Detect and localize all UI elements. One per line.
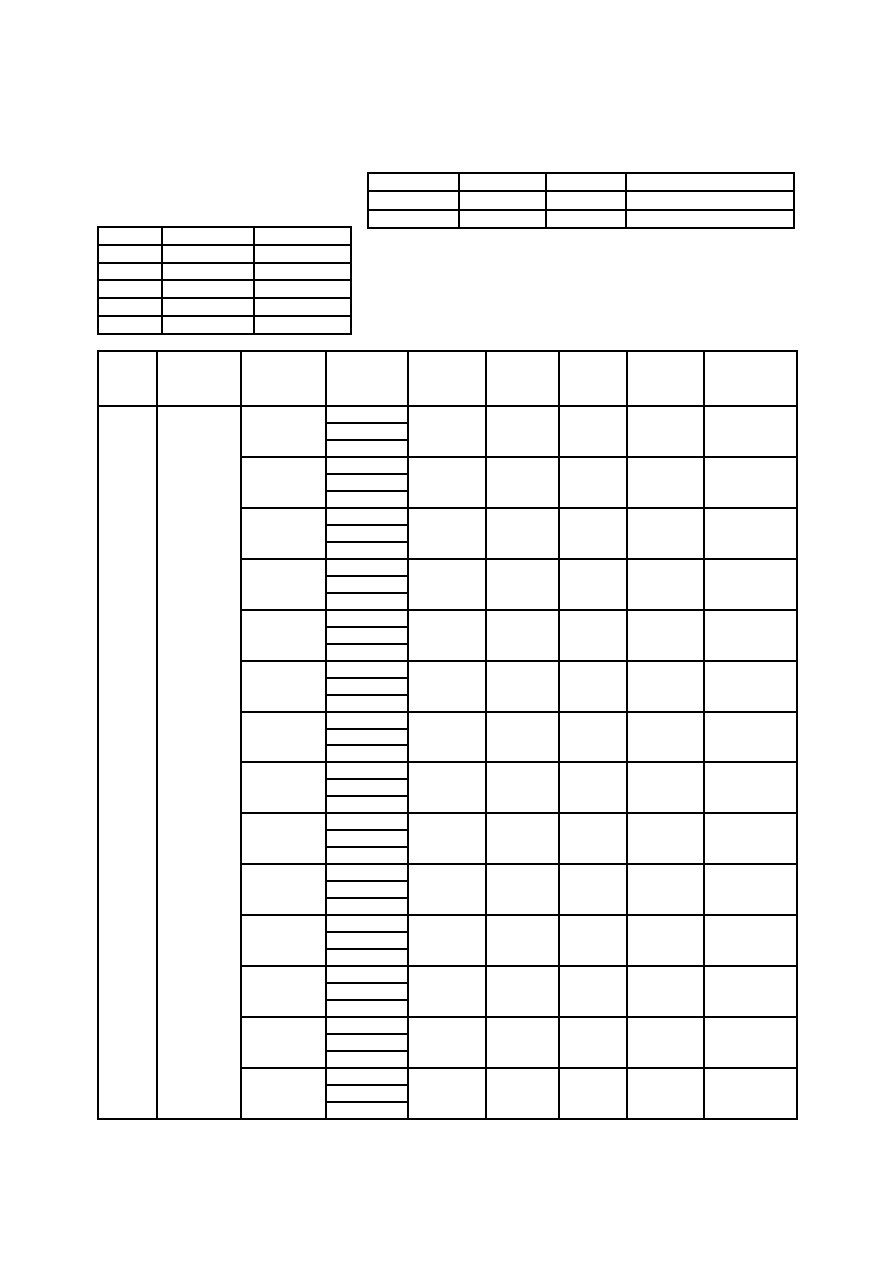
left-table <box>97 226 352 335</box>
table-cell <box>627 211 793 227</box>
body-cell <box>487 662 560 711</box>
main-table-row-groups <box>242 407 796 1118</box>
table-cell <box>99 246 163 262</box>
body-row-group <box>242 509 796 560</box>
header-cell <box>487 352 560 405</box>
main-table-merged-column-2 <box>158 407 242 1118</box>
body-cell <box>242 509 327 558</box>
body-row-group <box>242 967 796 1018</box>
body-row-group <box>242 865 796 916</box>
body-cell <box>242 611 327 660</box>
column4-subcell <box>327 628 407 645</box>
body-cell <box>242 560 327 609</box>
column4-subcell <box>327 662 407 679</box>
table-row <box>99 299 350 317</box>
column4-subcell <box>327 458 407 475</box>
body-cell <box>705 763 796 812</box>
body-cell <box>560 458 628 507</box>
column4-subdivided-cell <box>327 509 409 558</box>
column4-subcell <box>327 865 407 882</box>
body-cell <box>705 560 796 609</box>
column4-subdivided-cell <box>327 611 409 660</box>
body-cell <box>487 407 560 456</box>
column4-subcell <box>327 1086 407 1103</box>
table-row <box>99 281 350 299</box>
header-cell <box>560 352 628 405</box>
column4-subdivided-cell <box>327 560 409 609</box>
body-cell <box>560 814 628 863</box>
body-cell <box>628 814 705 863</box>
column4-subdivided-cell <box>327 814 409 863</box>
column4-subdivided-cell <box>327 916 409 965</box>
header-cell <box>158 352 242 405</box>
table-cell <box>163 317 255 333</box>
body-row-group <box>242 560 796 611</box>
header-cell <box>705 352 796 405</box>
body-cell <box>242 458 327 507</box>
column4-subcell <box>327 1069 407 1086</box>
column4-subcell <box>327 424 407 441</box>
header-cell <box>242 352 327 405</box>
body-cell <box>705 713 796 762</box>
table-cell <box>369 211 460 227</box>
column4-subcell <box>327 1052 407 1067</box>
table-cell <box>255 228 350 244</box>
body-cell <box>560 763 628 812</box>
body-row-group <box>242 611 796 662</box>
table-row <box>99 246 350 264</box>
body-cell <box>487 967 560 1016</box>
column4-subcell <box>327 814 407 831</box>
column4-subcell <box>327 509 407 526</box>
body-cell <box>560 865 628 914</box>
body-cell <box>242 763 327 812</box>
column4-subcell <box>327 611 407 628</box>
table-cell <box>99 264 163 280</box>
column4-subcell <box>327 577 407 594</box>
column4-subcell <box>327 780 407 797</box>
body-cell <box>560 509 628 558</box>
column4-subcell <box>327 441 407 456</box>
body-cell <box>560 1069 628 1118</box>
body-cell <box>560 967 628 1016</box>
body-cell <box>242 967 327 1016</box>
body-cell <box>628 916 705 965</box>
body-cell <box>409 763 487 812</box>
table-cell <box>547 192 627 208</box>
table-cell <box>255 299 350 315</box>
table-cell <box>163 264 255 280</box>
column4-subcell <box>327 797 407 812</box>
body-cell <box>705 916 796 965</box>
table-row <box>369 174 793 192</box>
body-cell <box>705 1069 796 1118</box>
column4-subcell <box>327 407 407 424</box>
main-table <box>97 350 798 1120</box>
body-row-group <box>242 814 796 865</box>
body-cell <box>705 407 796 456</box>
main-table-merged-column-1 <box>99 407 158 1118</box>
body-cell <box>560 560 628 609</box>
body-row-group <box>242 1069 796 1118</box>
table-row <box>369 192 793 210</box>
body-cell <box>628 1069 705 1118</box>
main-table-body <box>99 407 796 1118</box>
top-right-table <box>367 172 795 229</box>
column4-subcell <box>327 882 407 899</box>
body-cell <box>487 916 560 965</box>
header-cell <box>409 352 487 405</box>
table-row <box>99 264 350 282</box>
body-cell <box>409 713 487 762</box>
body-row-group <box>242 662 796 713</box>
document-page <box>0 0 893 1263</box>
column4-subcell <box>327 831 407 848</box>
column4-subcell <box>327 645 407 660</box>
body-row-group <box>242 407 796 458</box>
body-cell <box>409 916 487 965</box>
body-cell <box>705 611 796 660</box>
body-cell <box>628 509 705 558</box>
table-row <box>99 317 350 333</box>
body-cell <box>628 662 705 711</box>
body-cell <box>487 814 560 863</box>
column4-subcell <box>327 492 407 507</box>
body-cell <box>242 662 327 711</box>
body-cell <box>560 713 628 762</box>
table-cell <box>460 174 547 190</box>
table-cell <box>460 211 547 227</box>
body-cell <box>705 1018 796 1067</box>
body-cell <box>242 1069 327 1118</box>
body-cell <box>409 611 487 660</box>
body-cell <box>628 560 705 609</box>
column4-subcell <box>327 1103 407 1118</box>
body-cell <box>628 611 705 660</box>
column4-subdivided-cell <box>327 458 409 507</box>
body-cell <box>487 713 560 762</box>
body-cell <box>409 1018 487 1067</box>
body-cell <box>705 967 796 1016</box>
body-cell <box>560 1018 628 1067</box>
table-cell <box>163 281 255 297</box>
table-cell <box>255 317 350 333</box>
body-cell <box>628 1018 705 1067</box>
column4-subdivided-cell <box>327 407 409 456</box>
table-cell <box>460 192 547 208</box>
body-cell <box>705 458 796 507</box>
body-cell <box>409 662 487 711</box>
column4-subcell <box>327 933 407 950</box>
table-row <box>369 211 793 227</box>
column4-subcell <box>327 984 407 1001</box>
table-cell <box>255 281 350 297</box>
body-cell <box>560 611 628 660</box>
column4-subcell <box>327 967 407 984</box>
column4-subcell <box>327 560 407 577</box>
body-cell <box>560 407 628 456</box>
body-cell <box>628 763 705 812</box>
body-cell <box>487 865 560 914</box>
column4-subcell <box>327 763 407 780</box>
body-cell <box>242 1018 327 1067</box>
column4-subcell <box>327 713 407 730</box>
column4-subdivided-cell <box>327 1018 409 1067</box>
column4-subcell <box>327 696 407 711</box>
column4-subcell <box>327 526 407 543</box>
body-row-group <box>242 916 796 967</box>
body-cell <box>628 713 705 762</box>
table-cell <box>99 281 163 297</box>
table-row <box>99 228 350 246</box>
body-cell <box>487 1018 560 1067</box>
table-cell <box>369 174 460 190</box>
table-cell <box>99 299 163 315</box>
body-cell <box>628 865 705 914</box>
table-cell <box>547 211 627 227</box>
column4-subcell <box>327 746 407 761</box>
table-cell <box>163 246 255 262</box>
body-cell <box>242 713 327 762</box>
body-cell <box>409 560 487 609</box>
body-cell <box>409 1069 487 1118</box>
column4-subdivided-cell <box>327 713 409 762</box>
body-cell <box>705 814 796 863</box>
table-cell <box>99 317 163 333</box>
body-cell <box>628 407 705 456</box>
header-cell <box>628 352 705 405</box>
body-cell <box>487 458 560 507</box>
header-cell <box>99 352 158 405</box>
body-row-group <box>242 713 796 764</box>
column4-subcell <box>327 1001 407 1016</box>
column4-subcell <box>327 679 407 696</box>
table-cell <box>255 246 350 262</box>
body-row-group <box>242 458 796 509</box>
table-cell <box>99 228 163 244</box>
body-row-group <box>242 763 796 814</box>
column4-subcell <box>327 899 407 914</box>
body-cell <box>705 865 796 914</box>
body-cell <box>409 865 487 914</box>
body-cell <box>409 814 487 863</box>
body-cell <box>242 814 327 863</box>
body-cell <box>628 458 705 507</box>
table-cell <box>369 192 460 208</box>
table-cell <box>627 192 793 208</box>
table-cell <box>163 299 255 315</box>
column4-subdivided-cell <box>327 967 409 1016</box>
table-cell <box>255 264 350 280</box>
body-cell <box>628 967 705 1016</box>
body-cell <box>242 865 327 914</box>
body-row-group <box>242 1018 796 1069</box>
body-cell <box>487 763 560 812</box>
column4-subcell <box>327 916 407 933</box>
column4-subcell <box>327 1018 407 1035</box>
column4-subdivided-cell <box>327 763 409 812</box>
body-cell <box>242 407 327 456</box>
body-cell <box>487 1069 560 1118</box>
body-cell <box>409 458 487 507</box>
table-cell <box>547 174 627 190</box>
body-cell <box>705 509 796 558</box>
column4-subdivided-cell <box>327 662 409 711</box>
table-cell <box>627 174 793 190</box>
body-cell <box>705 662 796 711</box>
column4-subcell <box>327 848 407 863</box>
body-cell <box>409 509 487 558</box>
body-cell <box>242 916 327 965</box>
body-cell <box>487 509 560 558</box>
column4-subdivided-cell <box>327 865 409 914</box>
header-cell <box>327 352 409 405</box>
body-cell <box>487 611 560 660</box>
table-cell <box>163 228 255 244</box>
body-cell <box>409 967 487 1016</box>
column4-subcell <box>327 1035 407 1052</box>
body-cell <box>560 662 628 711</box>
body-cell <box>487 560 560 609</box>
column4-subcell <box>327 730 407 747</box>
column4-subcell <box>327 475 407 492</box>
column4-subcell <box>327 543 407 558</box>
column4-subcell <box>327 594 407 609</box>
column4-subdivided-cell <box>327 1069 409 1118</box>
column4-subcell <box>327 950 407 965</box>
body-cell <box>409 407 487 456</box>
main-table-header-row <box>99 352 796 407</box>
body-cell <box>560 916 628 965</box>
